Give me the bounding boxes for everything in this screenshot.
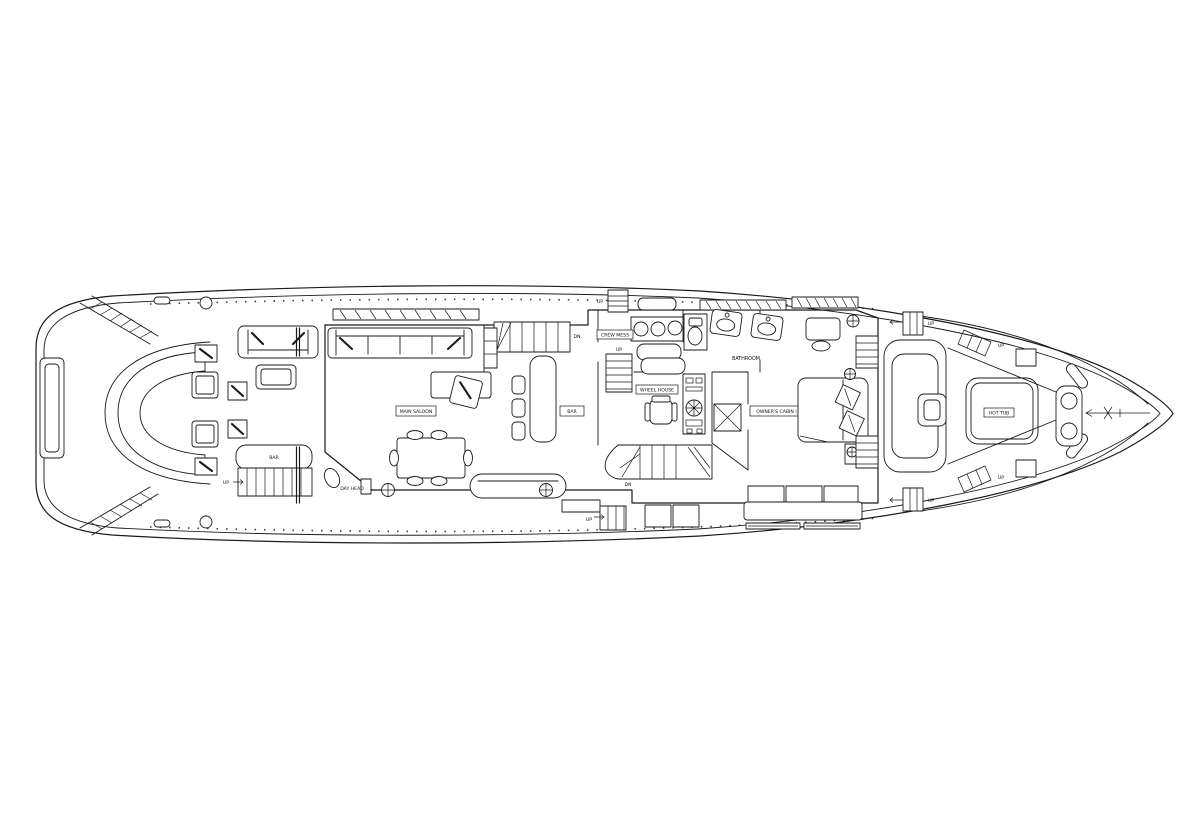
saloon-armchair	[449, 375, 483, 409]
hot-tub: HOT TUB	[966, 378, 1038, 444]
crew-stairs-up: UP	[597, 290, 628, 312]
mid-bar-label: BAR	[560, 406, 584, 416]
foredeck-stairs-top-left: UP	[890, 312, 934, 335]
sidedeck-sofa	[744, 486, 862, 529]
wheelhouse-label: WHEEL HOUSE	[636, 385, 678, 394]
hot-tub-label: HOT TUB	[989, 411, 1010, 417]
helm-chair	[645, 396, 677, 424]
up-sidedeck-label: UP	[586, 517, 592, 523]
helm-console	[683, 374, 705, 434]
mid-stairs-dn: DN	[605, 445, 712, 488]
svg-text:BAR: BAR	[567, 409, 577, 415]
aft-bar: BAR	[236, 445, 312, 469]
galley-stairs-dn: DN	[494, 322, 580, 352]
dn-mid-label: DN	[625, 482, 632, 488]
svg-text:WHEEL HOUSE: WHEEL HOUSE	[640, 388, 674, 394]
dining-set	[390, 431, 473, 486]
crew-mess-furniture	[631, 314, 707, 374]
owners-desk	[806, 315, 859, 351]
foredeck-lounge	[884, 340, 946, 472]
foredeck-stairs-bottom-right: UP	[958, 466, 1004, 492]
foredeck-stairs-bottom-left: UP	[890, 488, 934, 511]
day-head-label: DAY HEAD	[340, 486, 364, 492]
up-fd-br: UP	[998, 475, 1004, 481]
svg-text:CREW MESS: CREW MESS	[601, 333, 629, 339]
saloon-sofa	[328, 328, 472, 358]
aft-stairs-up: UP	[223, 468, 312, 496]
aft-curved-settee	[105, 342, 210, 484]
aft-deck-sofa	[238, 326, 318, 389]
bathroom-vanity: BATHROOM	[709, 309, 783, 362]
bow-windlass	[1056, 362, 1090, 460]
shower	[714, 404, 741, 431]
svg-text:MAIN SALOON: MAIN SALOON	[400, 409, 433, 415]
day-head: DAY HEAD	[321, 466, 371, 494]
owners-bed	[798, 378, 868, 442]
up-aft-label: UP	[223, 480, 229, 486]
wheelhouse-stairs-up: UP	[606, 347, 632, 392]
crew-mess-label: CREW MESS	[597, 330, 633, 339]
svg-text:OWNER'S CABIN (1): OWNER'S CABIN (1)	[756, 409, 802, 415]
stern-platform	[40, 358, 64, 458]
bar-aft-label: BAR	[269, 455, 279, 461]
anchor-line	[1086, 407, 1150, 419]
deck-plan-svg: BAR UP	[0, 0, 1200, 825]
up-fd-tr: UP	[998, 343, 1004, 349]
bathroom-label: BATHROOM	[732, 356, 760, 362]
up-crew-label: UP	[597, 299, 603, 305]
main-saloon-label: MAIN SALOON	[396, 406, 436, 416]
deck-cleats	[154, 297, 212, 528]
up-fd-bl: UP	[928, 498, 934, 504]
up-wheelhouse-label: UP	[616, 347, 622, 353]
up-fd-tl: UP	[928, 321, 934, 327]
deck-plan-canvas: BAR UP	[0, 0, 1200, 825]
dn-galley-label: DN	[574, 334, 581, 340]
